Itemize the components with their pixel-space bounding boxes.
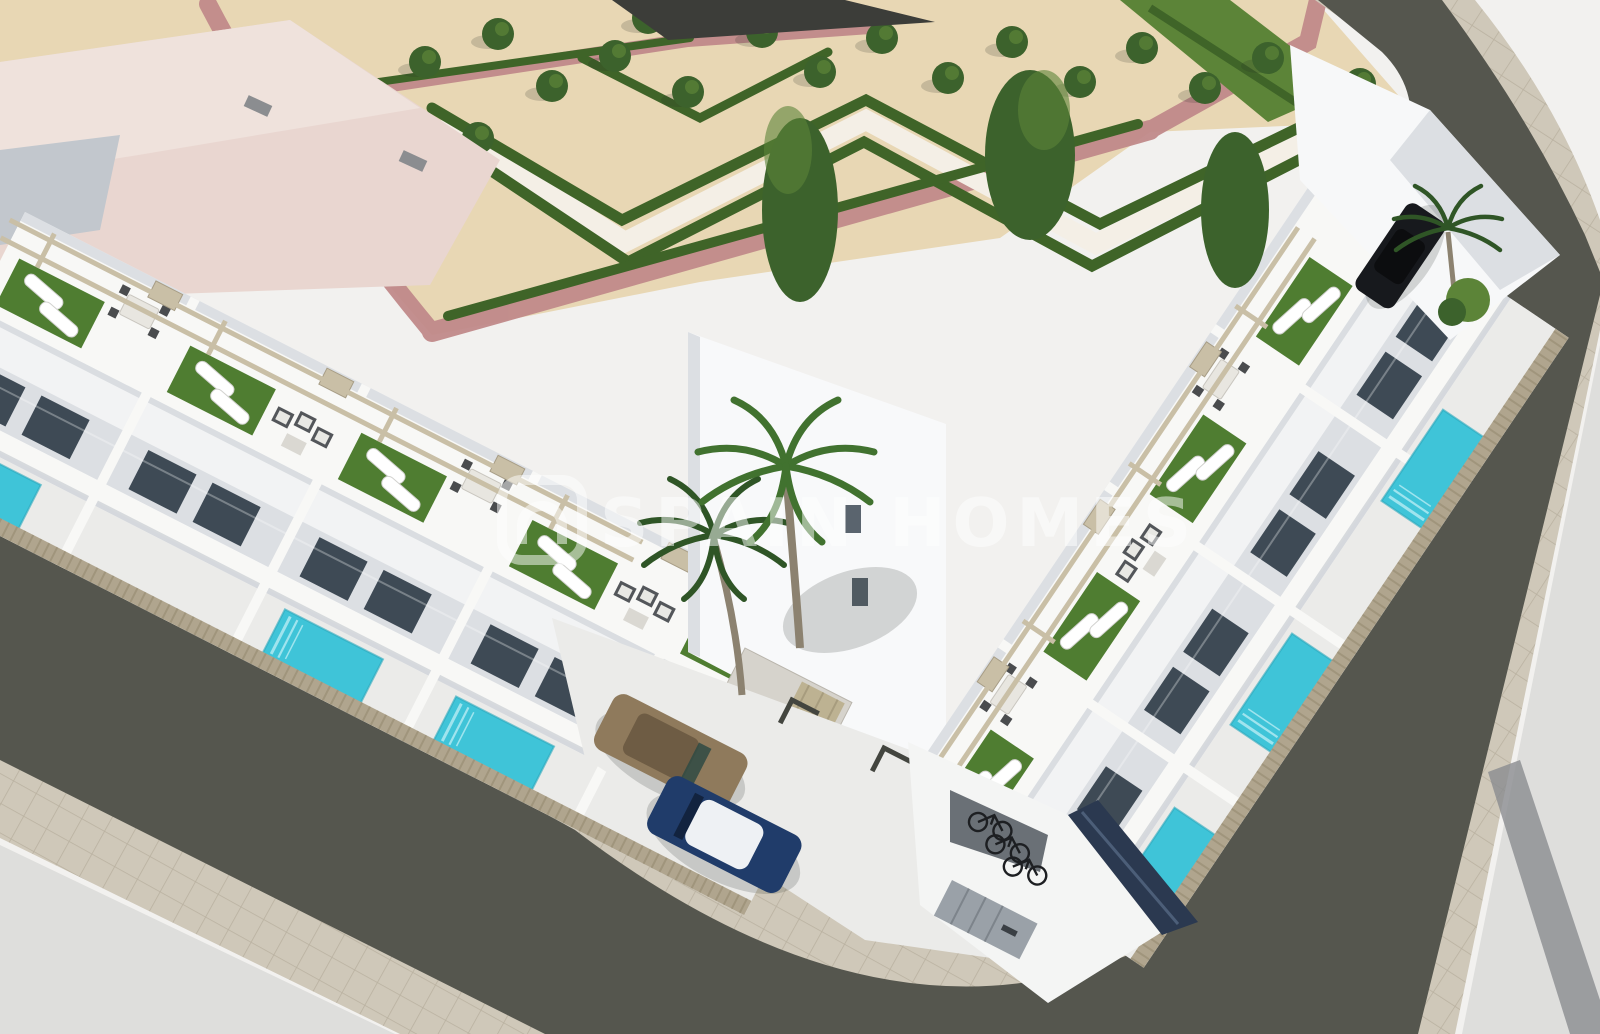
watermark-text: SPAIN HOMES bbox=[600, 484, 1198, 562]
aerial-render: SPAIN HOMES bbox=[0, 0, 1600, 1034]
render-scene: SPAIN HOMES bbox=[0, 0, 1600, 1034]
watermark: SPAIN HOMES bbox=[502, 480, 1198, 562]
shrub bbox=[1438, 298, 1466, 326]
